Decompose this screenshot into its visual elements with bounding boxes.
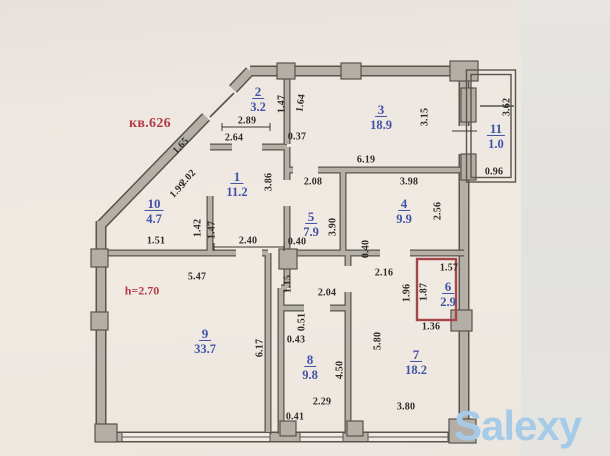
dimension-label: 0.40 bbox=[361, 240, 372, 258]
room-number: 6 bbox=[442, 280, 455, 294]
dimension-label: 2.64 bbox=[225, 133, 243, 144]
dimension-label: 1.15 bbox=[283, 275, 294, 293]
dimension-label: 1.47 bbox=[277, 95, 288, 113]
dimension-label: 4.50 bbox=[335, 361, 346, 379]
room-area: 18.9 bbox=[370, 119, 392, 132]
room-number: 7 bbox=[410, 348, 423, 362]
apartment-number-label: кв.626 bbox=[129, 116, 171, 132]
room-area: 33.7 bbox=[194, 343, 216, 356]
dimension-label: 2.08 bbox=[304, 177, 322, 188]
dimension-label: 6.19 bbox=[357, 155, 375, 166]
dimension-label: 6.17 bbox=[255, 339, 266, 357]
room-label-7: 718.2 bbox=[405, 347, 427, 377]
dimension-label: 1.47 bbox=[207, 221, 218, 239]
dimension-label: 2.16 bbox=[375, 268, 393, 279]
room-number: 1 bbox=[231, 170, 244, 184]
room-number: 4 bbox=[398, 197, 411, 211]
salexy-watermark: Salexy bbox=[454, 402, 610, 450]
room-label-6: 62.9 bbox=[440, 279, 456, 309]
room-number: 10 bbox=[145, 197, 164, 211]
room-area: 3.2 bbox=[250, 101, 266, 114]
room-area: 18.2 bbox=[405, 364, 427, 377]
room-area: 1.0 bbox=[487, 138, 505, 151]
room-label-2: 23.2 bbox=[250, 84, 266, 114]
dimension-label: 5.47 bbox=[188, 272, 206, 283]
dimension-label: 0.43 bbox=[287, 335, 305, 346]
dimension-label: 2.29 bbox=[313, 397, 331, 408]
room-label-3: 318.9 bbox=[370, 102, 392, 132]
dimension-label: 0.51 bbox=[297, 313, 308, 331]
dimension-label: 0.96 bbox=[485, 167, 503, 178]
room-number: 8 bbox=[304, 353, 317, 367]
dimension-label: 1.57 bbox=[440, 263, 458, 274]
dimension-label: 5.80 bbox=[373, 332, 384, 350]
dimension-label: 1.96 bbox=[402, 284, 413, 302]
dimension-label: 3.90 bbox=[328, 218, 339, 236]
ceiling-height-label: h=2.70 bbox=[125, 284, 160, 299]
dimension-label: 3.98 bbox=[400, 177, 418, 188]
dimension-label: 1.42 bbox=[193, 219, 204, 237]
dimension-label: 1.36 bbox=[422, 322, 440, 333]
dimension-label: 2.40 bbox=[239, 236, 257, 247]
room-area: 2.9 bbox=[440, 296, 456, 309]
dimension-label: 3.80 bbox=[397, 402, 415, 413]
room-label-9: 933.7 bbox=[194, 326, 216, 356]
room-number: 2 bbox=[252, 85, 265, 99]
dimension-label: 0.41 bbox=[286, 412, 304, 423]
dimension-label: 0.40 bbox=[288, 237, 306, 248]
room-label-11: 111.0 bbox=[487, 121, 505, 151]
dimension-label: 2.04 bbox=[318, 288, 336, 299]
floorplan-photo: 111.223.2318.949.957.962.9718.289.8933.7… bbox=[0, 0, 610, 456]
room-label-8: 89.8 bbox=[302, 352, 318, 382]
room-area: 4.7 bbox=[145, 213, 164, 226]
room-number: 9 bbox=[199, 327, 212, 341]
dimension-label: 0.37 bbox=[288, 132, 306, 143]
dimension-label: 1.51 bbox=[147, 236, 165, 247]
dimension-label: 3.15 bbox=[420, 108, 431, 126]
room-area: 9.9 bbox=[396, 213, 412, 226]
room-number: 5 bbox=[305, 210, 318, 224]
room-label-5: 57.9 bbox=[303, 209, 319, 239]
room-number: 11 bbox=[487, 122, 505, 136]
room-label-4: 49.9 bbox=[396, 196, 412, 226]
room-number: 3 bbox=[375, 103, 388, 117]
room-area: 9.8 bbox=[302, 369, 318, 382]
dimension-label: 1.87 bbox=[419, 283, 430, 301]
dimension-label: 2.56 bbox=[433, 202, 444, 220]
dimension-label: 3.86 bbox=[264, 173, 275, 191]
dimension-label: 3.62 bbox=[502, 98, 513, 116]
dimension-label: 2.89 bbox=[238, 116, 256, 127]
room-label-1: 111.2 bbox=[226, 169, 247, 199]
room-area: 11.2 bbox=[226, 186, 247, 199]
room-label-10: 104.7 bbox=[145, 196, 164, 226]
